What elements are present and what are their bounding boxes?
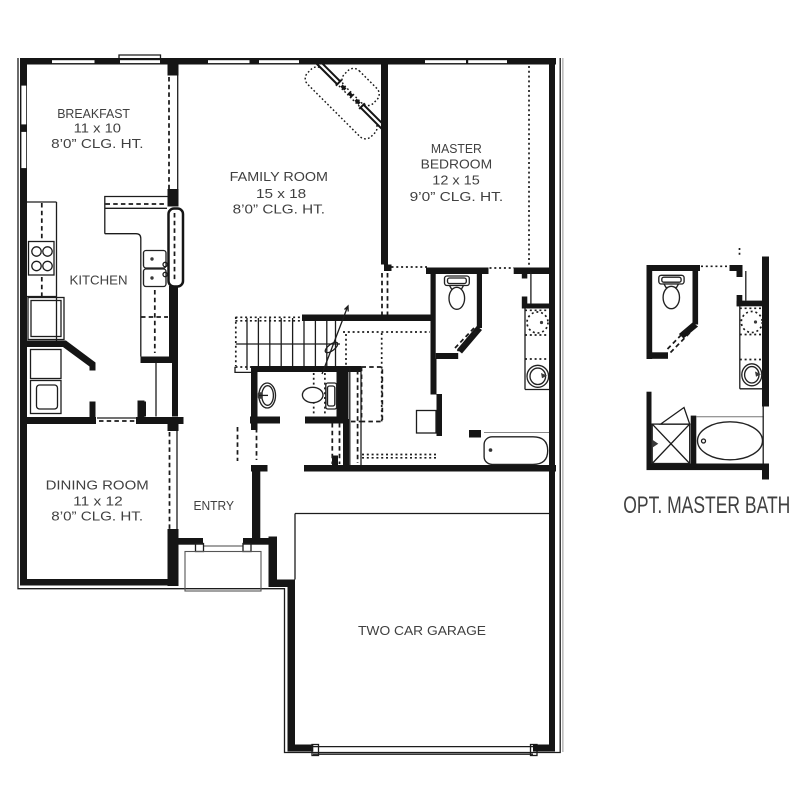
svg-text:15 x 18: 15 x 18 xyxy=(256,186,306,201)
svg-text:11 x 12: 11 x 12 xyxy=(73,494,123,509)
svg-text:8’0” CLG. HT.: 8’0” CLG. HT. xyxy=(51,136,143,151)
svg-text:FAMILY ROOM: FAMILY ROOM xyxy=(230,169,328,184)
svg-text:11 x 10: 11 x 10 xyxy=(74,121,121,136)
svg-text:BEDROOM: BEDROOM xyxy=(421,157,493,172)
svg-text:OPT. MASTER BATH: OPT. MASTER BATH xyxy=(623,492,790,519)
svg-text:MASTER: MASTER xyxy=(431,141,482,156)
svg-text:KITCHEN: KITCHEN xyxy=(70,273,128,288)
svg-text:12 x 15: 12 x 15 xyxy=(432,173,480,188)
svg-text:TWO CAR GARAGE: TWO CAR GARAGE xyxy=(358,623,486,638)
svg-text:BREAKFAST: BREAKFAST xyxy=(57,106,130,121)
svg-text:8’0” CLG. HT.: 8’0” CLG. HT. xyxy=(233,202,325,217)
svg-text:ENTRY: ENTRY xyxy=(194,498,235,513)
svg-text:8’0” CLG. HT.: 8’0” CLG. HT. xyxy=(51,508,143,523)
svg-text:DINING ROOM: DINING ROOM xyxy=(46,478,149,493)
svg-text:9’0” CLG. HT.: 9’0” CLG. HT. xyxy=(410,189,504,204)
